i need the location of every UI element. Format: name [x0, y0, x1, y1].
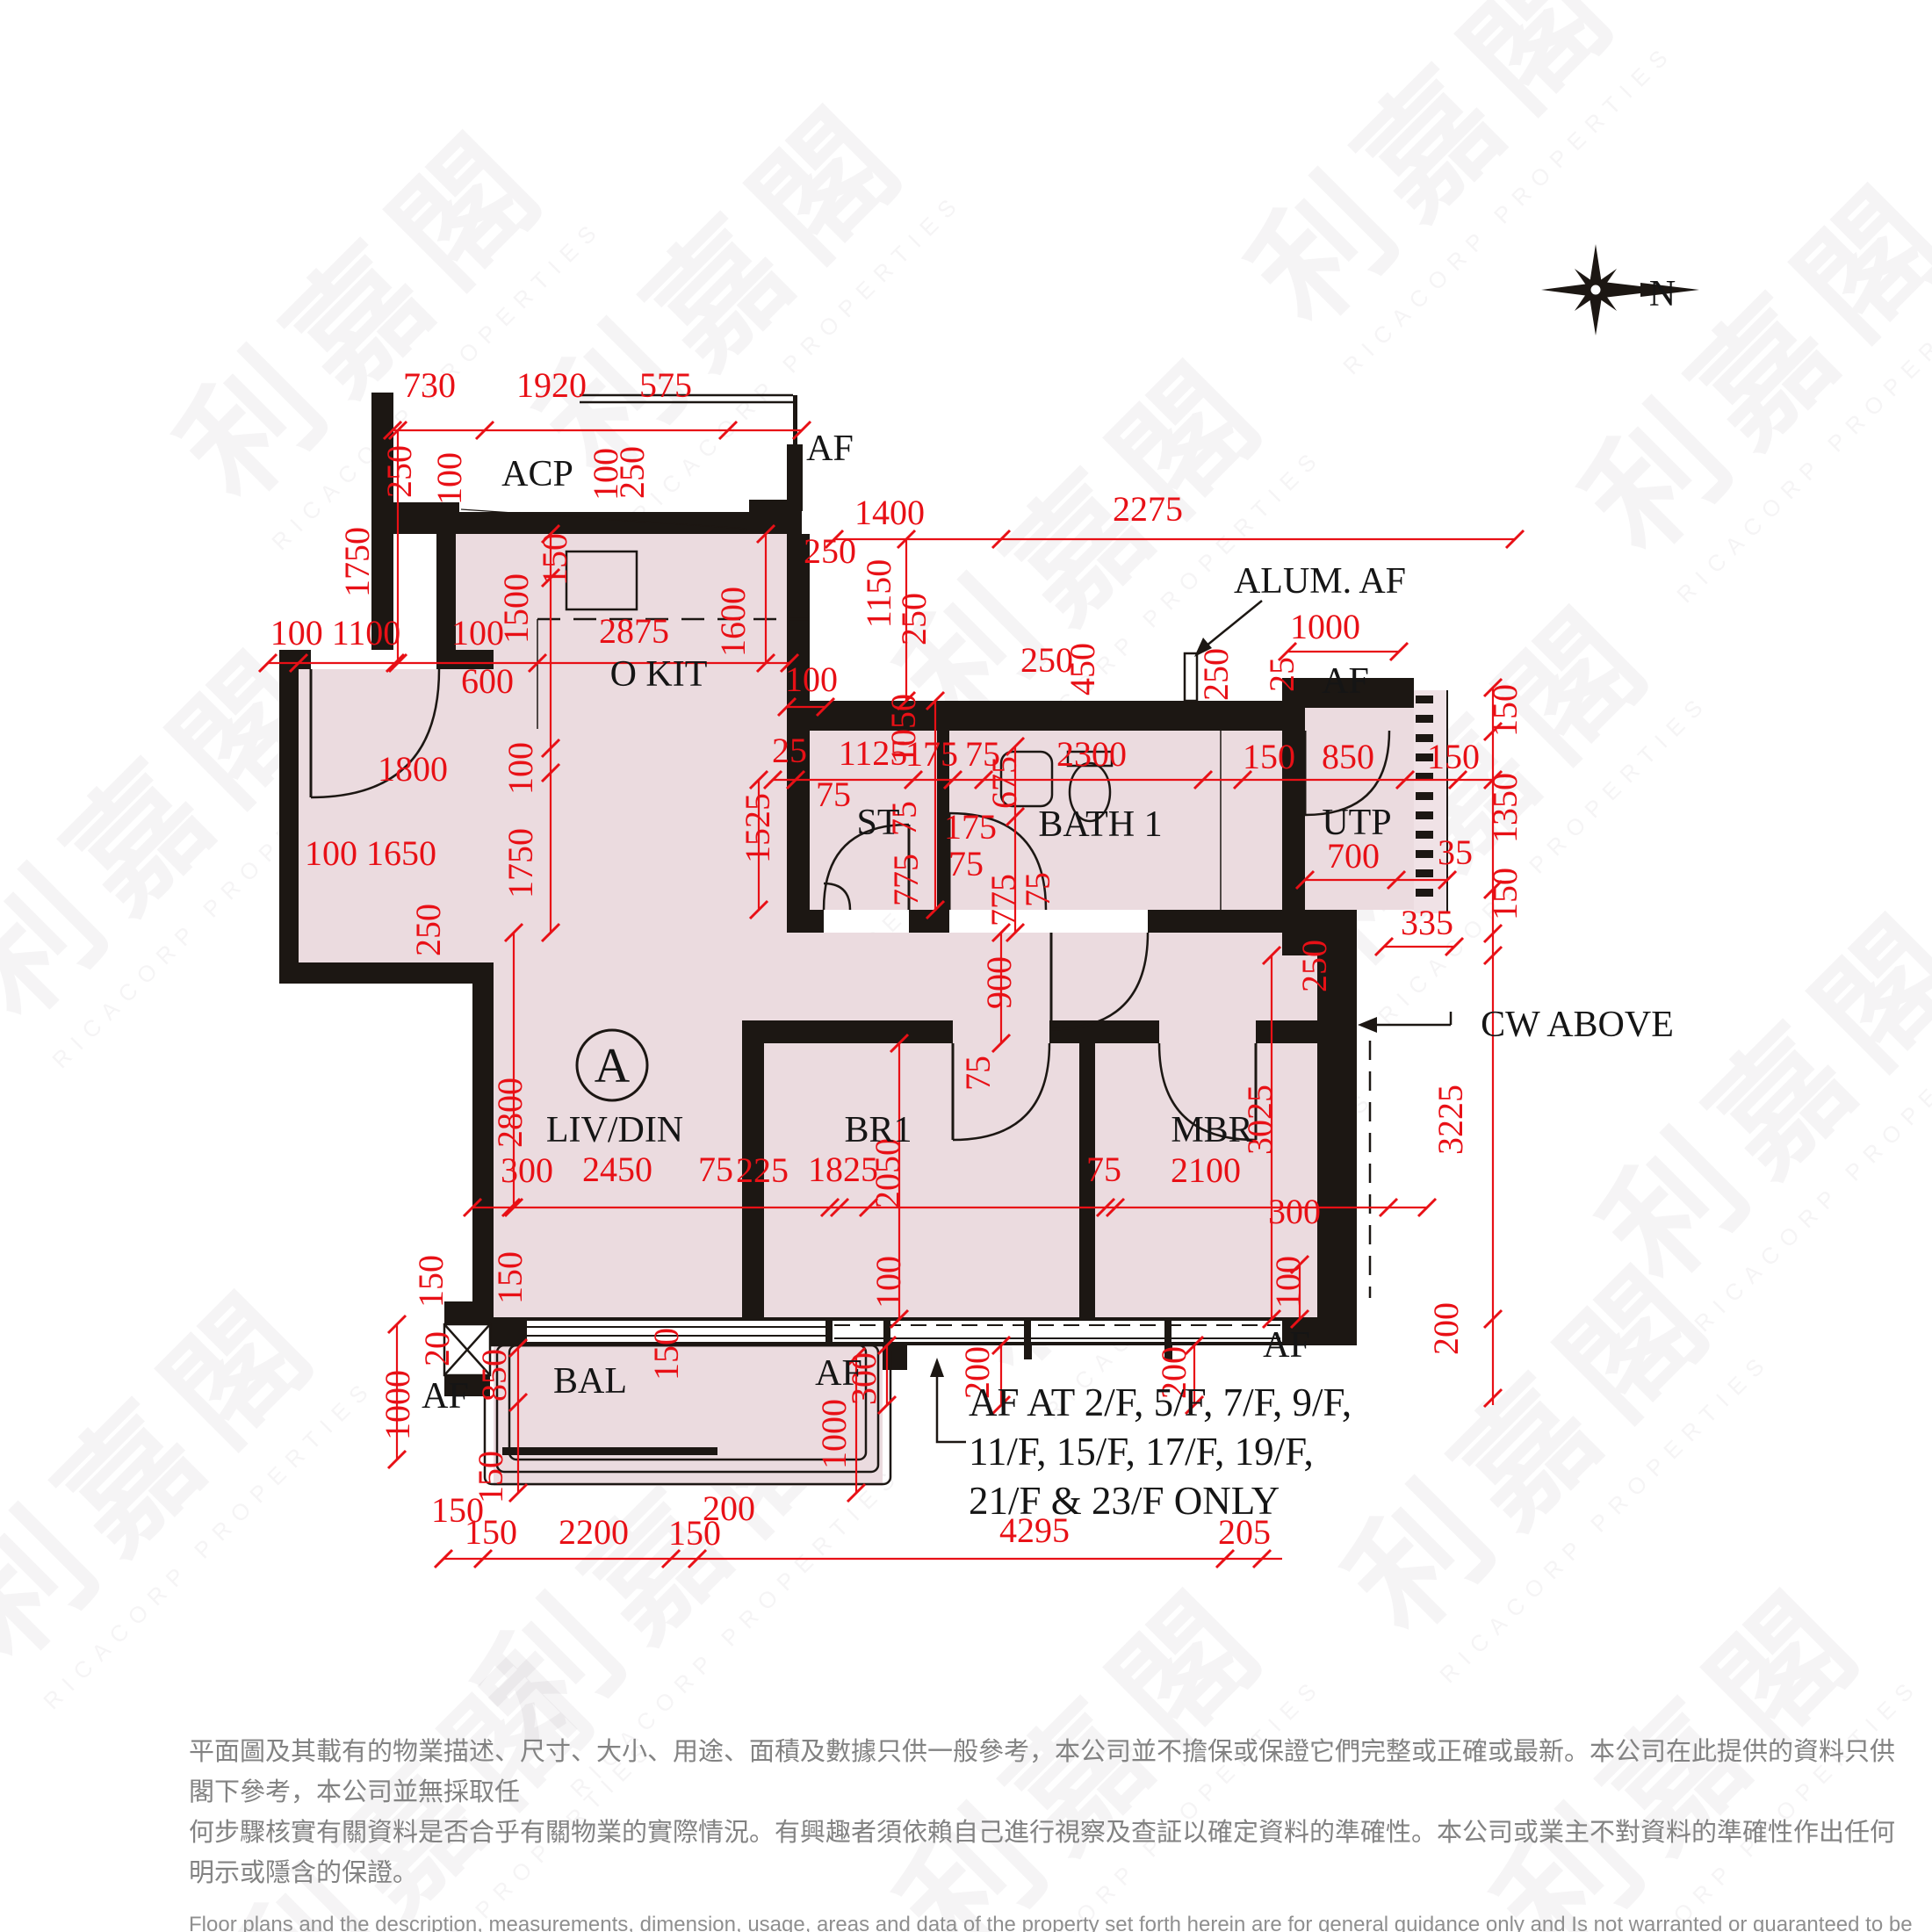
dimension-label: 1750 — [337, 527, 377, 597]
unit-badge-letter: A — [595, 1039, 631, 1093]
dimension-label: 675 — [984, 756, 1024, 809]
dimension-label: 2800 — [490, 1078, 530, 1148]
dimension-label: 1125 — [839, 733, 908, 773]
dimension-label: 150 — [1485, 684, 1525, 737]
dimension-label: 100 1650 — [305, 833, 436, 873]
room-label-liv-din: LIV/DIN — [546, 1110, 683, 1150]
dimension-label: 250 — [894, 593, 934, 645]
room-label-br1: BR1 — [844, 1110, 912, 1150]
feature-label-alum-af: ALUM. AF — [1234, 561, 1406, 602]
dimension-label: 1150 — [859, 559, 898, 629]
af-floors-note-line: 11/F, 15/F, 17/F, 19/F, — [969, 1430, 1314, 1474]
dimension-label: 175 — [944, 807, 997, 847]
dimension-label: 3225 — [1431, 1085, 1470, 1155]
dimension-label: 100 — [785, 660, 838, 699]
north-label: N — [1649, 274, 1676, 314]
dimension-label: 150 — [465, 1512, 517, 1552]
room-label-utp: UTP — [1322, 803, 1391, 843]
dimension-label: 850 — [474, 1349, 514, 1402]
dimension-label: 600 — [461, 661, 514, 701]
dimension-label: 75 — [948, 844, 984, 883]
floor-plan-drawing: 7301920575250100100250140022751750250115… — [0, 0, 1932, 1932]
dimension-label: 225 — [736, 1150, 789, 1190]
dimension-label: 2275 — [1113, 489, 1183, 529]
dimension-label: 150 — [646, 1328, 686, 1381]
dimension-label: 1000 — [378, 1370, 417, 1440]
dimension-label: 100 — [429, 452, 469, 505]
floor-plan-page: 利嘉閣RICACORP PROPERTIES利嘉閣RICACORP PROPER… — [0, 0, 1932, 1932]
dimension-label: 250 — [804, 531, 856, 571]
dimension-label: 150 — [535, 533, 574, 586]
dimension-label: 100 1100 — [270, 613, 401, 652]
af-floors-note-line: AF AT 2/F, 5/F, 7/F, 9/F, — [969, 1381, 1352, 1424]
dimension-label: 250 — [1020, 640, 1073, 680]
dimension-label: 575 — [639, 365, 692, 405]
dimension-label: 850 — [1322, 737, 1374, 776]
dimension-label: 150 — [1243, 737, 1295, 776]
feature-label-af: AF — [1263, 1325, 1310, 1366]
dimension-label: 1800 — [378, 749, 448, 789]
dimension-label: 1920 — [516, 365, 587, 405]
room-label-st: ST — [856, 803, 899, 843]
dimension-label: 2875 — [599, 611, 669, 651]
dimension-label: 100 — [451, 613, 504, 652]
dimension-label: 2300 — [1056, 734, 1127, 774]
room-label-mbr: MBR — [1171, 1110, 1252, 1150]
dimension-label: 775 — [886, 854, 926, 906]
feature-label-af: AF — [806, 429, 854, 469]
dimension-label: 75 — [698, 1150, 733, 1189]
dimension-label: 900 — [979, 956, 1019, 1009]
disclaimer-zh-line2: 何步驟核實有關資料是否合乎有關物業的實際情況。有興趣者須依賴自己進行視察及查証以… — [189, 1813, 1914, 1893]
dimension-label: 730 — [403, 365, 456, 405]
room-label-acp: ACP — [501, 454, 573, 494]
dimension-label: 250 — [1294, 940, 1334, 992]
dimension-label: 1825 — [808, 1150, 878, 1189]
room-label-bal: BAL — [553, 1361, 627, 1402]
feature-label-af: AF — [422, 1376, 469, 1417]
dimension-label: 75 — [816, 775, 851, 814]
disclaimer-block: 平面圖及其載有的物業描述、尺寸、大小、用途、面積及數據只供一般參考，本公司並不擔… — [189, 1732, 1914, 1932]
dimension-label: 1600 — [713, 587, 753, 657]
disclaimer-zh-line1: 平面圖及其載有的物業描述、尺寸、大小、用途、面積及數據只供一般參考，本公司並不擔… — [189, 1732, 1914, 1813]
dimension-label: 75 — [1018, 872, 1057, 907]
dimension-label: 150 — [1427, 737, 1480, 776]
dimension-label: 1400 — [854, 493, 925, 532]
dimension-label: 100 — [869, 1256, 908, 1308]
dimension-label: 75 — [1086, 1150, 1121, 1189]
dimension-label: 2100 — [1171, 1150, 1241, 1190]
dimension-label: 250 — [612, 446, 652, 499]
dimension-label: 300 — [501, 1150, 553, 1190]
dimension-label: 150 — [1485, 868, 1525, 920]
dimension-label: 250 — [408, 904, 448, 956]
dimension-label: 335 — [1401, 903, 1453, 942]
dimension-label: 300 — [1268, 1192, 1321, 1231]
dimension-label: 150 — [490, 1251, 530, 1304]
feature-label-af: AF — [1322, 661, 1369, 702]
dimension-label: 150 — [411, 1255, 451, 1308]
room-label-bath-1: BATH 1 — [1038, 804, 1162, 845]
dimension-label: 1000 — [814, 1399, 854, 1469]
dimension-label: 200 — [1426, 1302, 1466, 1355]
dimension-label: 1350 — [1485, 773, 1525, 843]
disclaimer-en-line1: Floor plans and the description, measure… — [189, 1907, 1914, 1932]
dimension-label: 250 — [379, 445, 419, 498]
feature-label-af: AF — [815, 1353, 862, 1394]
dimension-label: 1525 — [738, 793, 777, 863]
dimension-label: 75 — [958, 1056, 998, 1091]
dimension-label: 2200 — [559, 1512, 629, 1552]
room-label-o-kit: O KIT — [610, 654, 708, 695]
dimension-label: 20 — [417, 1331, 457, 1366]
dimension-label: 100 — [1268, 1256, 1308, 1308]
dimension-label: 100 — [501, 742, 540, 795]
dimension-label: 1750 — [501, 828, 540, 898]
dimension-label: 35 — [1438, 833, 1473, 872]
dimension-label: 175 — [905, 734, 958, 774]
dimension-label: 1000 — [1290, 607, 1360, 646]
dimension-label: 2450 — [582, 1150, 652, 1189]
dimension-label: 200 — [703, 1489, 755, 1528]
dimension-label: 25 — [772, 731, 807, 770]
dimension-label: 25 — [1262, 657, 1301, 692]
feature-label-cw-above: CW ABOVE — [1481, 1005, 1674, 1045]
dimension-label: 250 — [1196, 648, 1236, 701]
af-floors-note-line: 21/F & 23/F ONLY — [969, 1479, 1280, 1523]
